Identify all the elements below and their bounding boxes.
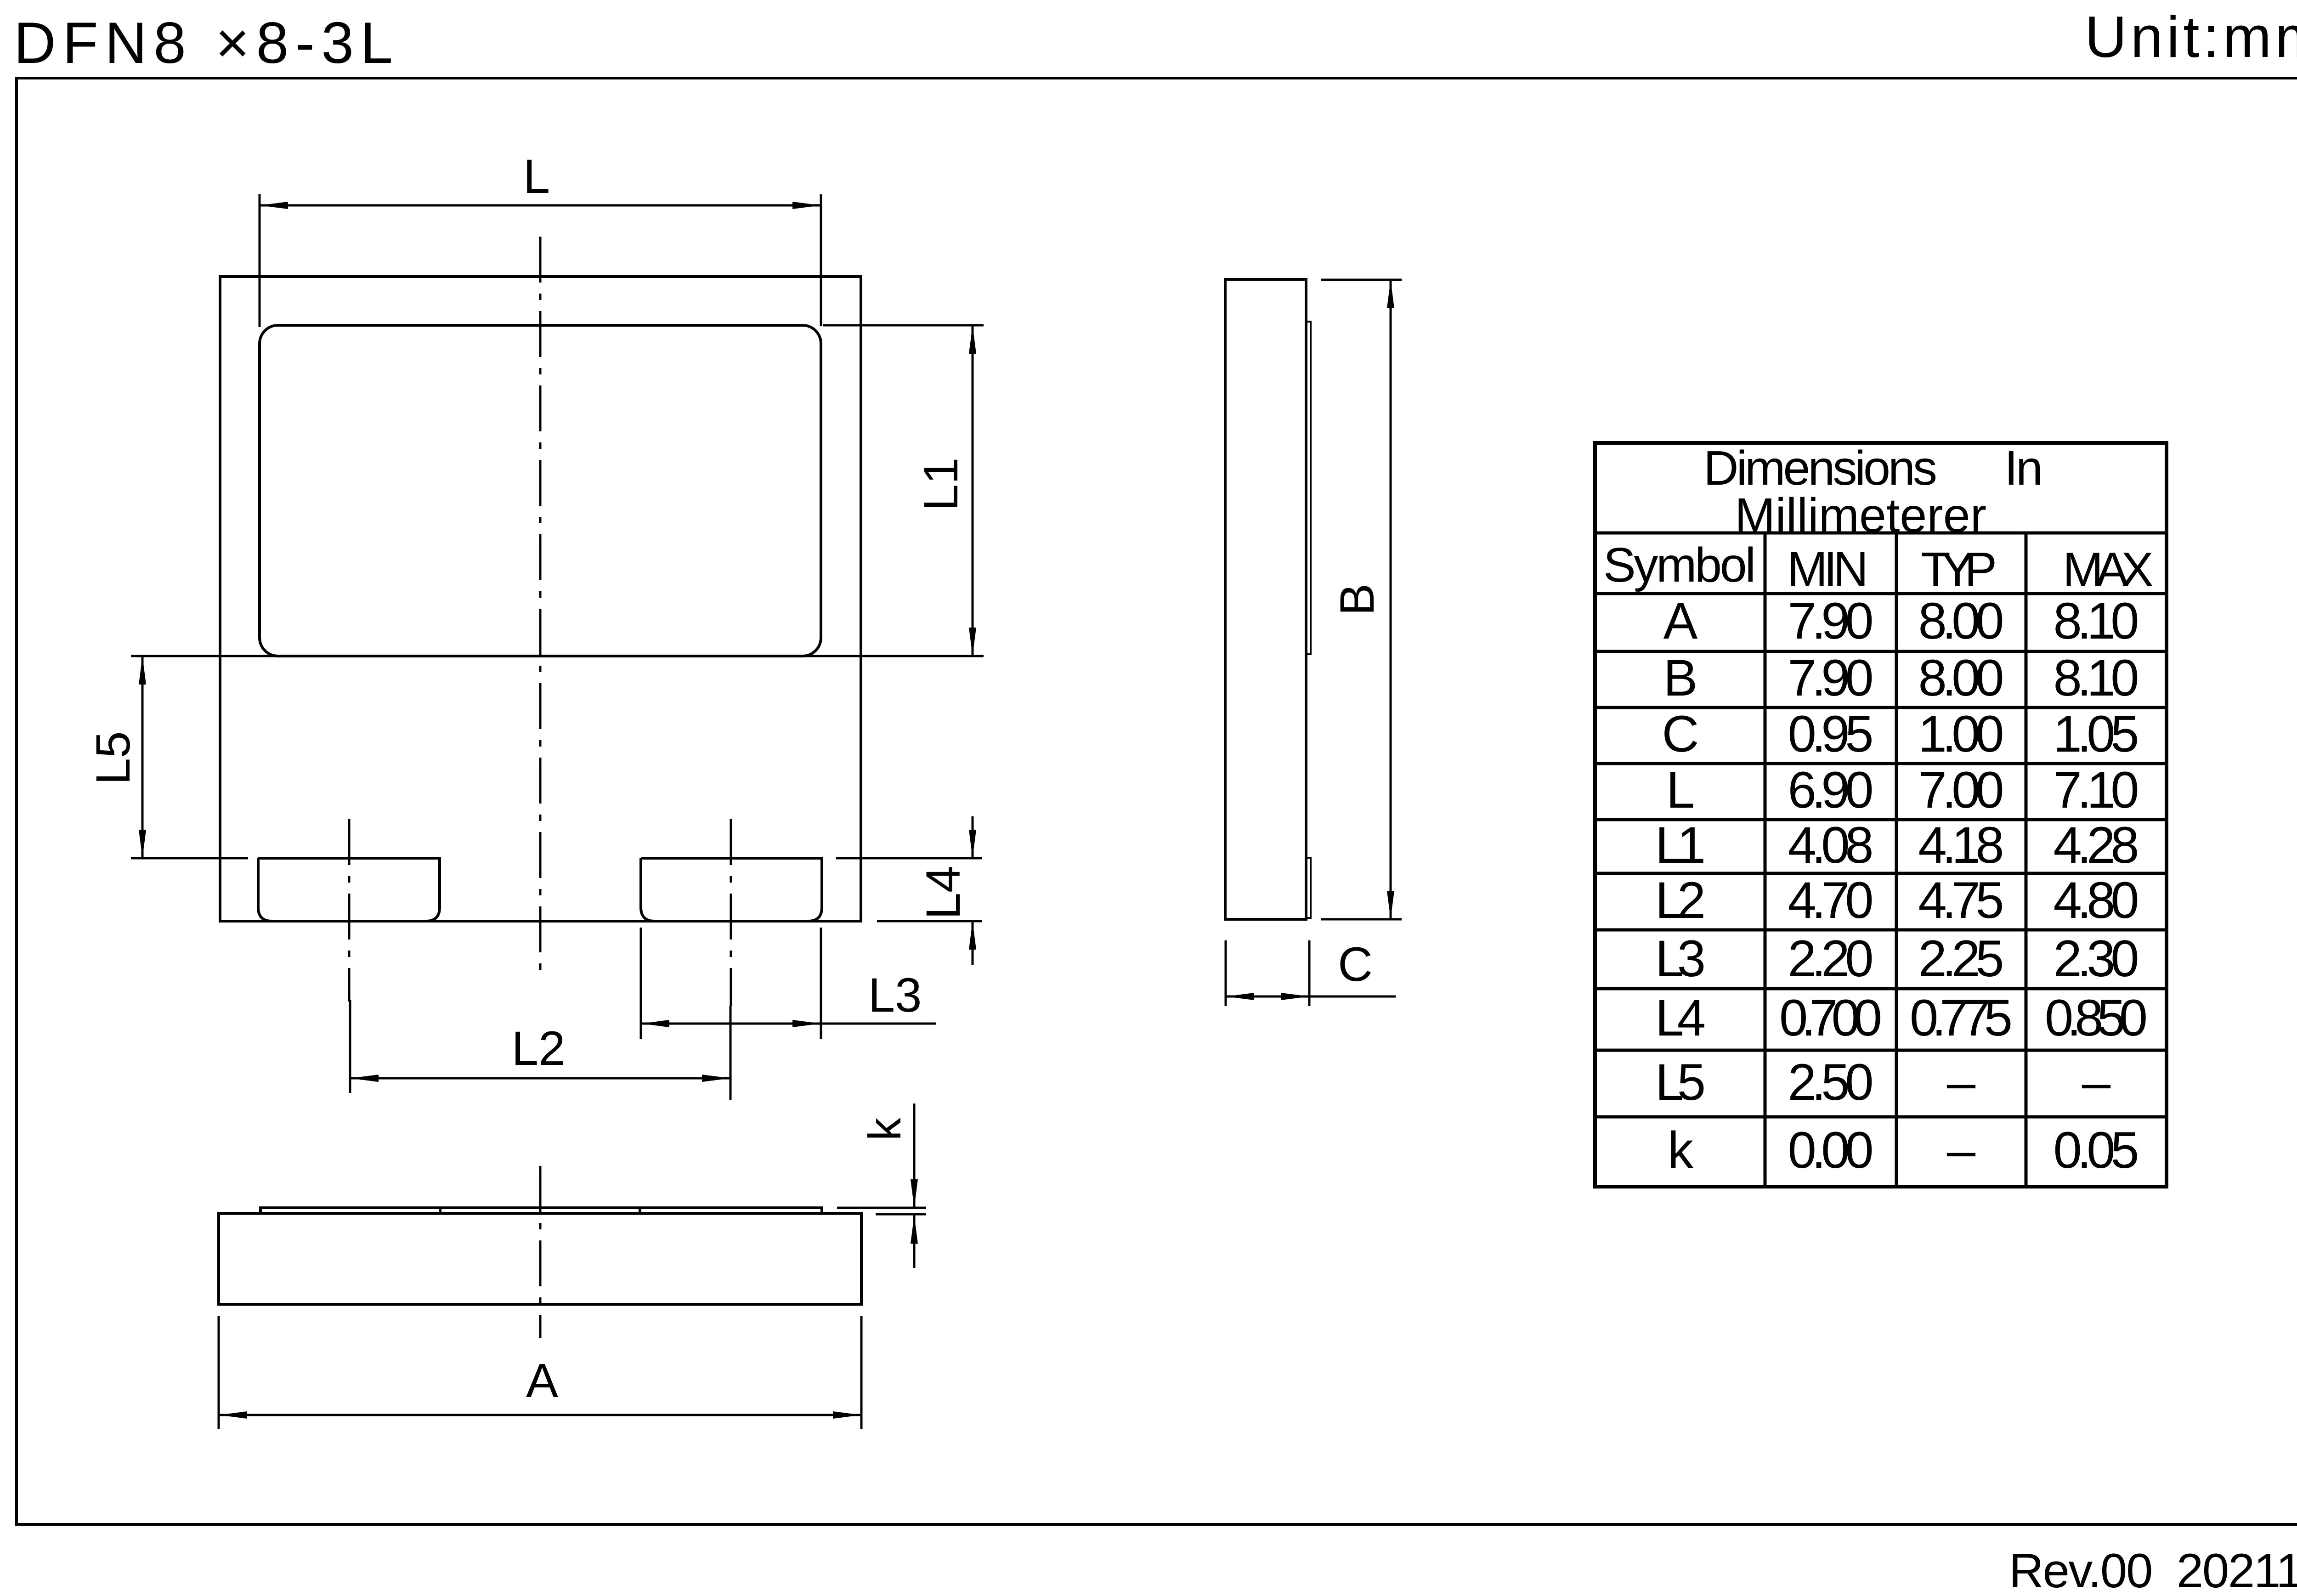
svg-text:2.25: 2.25 bbox=[1918, 930, 2004, 987]
svg-text:L2: L2 bbox=[1655, 872, 1706, 929]
svg-text:MAX: MAX bbox=[2063, 543, 2154, 597]
svg-text:DFN8 ×8-3L: DFN8 ×8-3L bbox=[14, 10, 393, 75]
svg-text:8.10: 8.10 bbox=[2054, 649, 2139, 707]
svg-text:L4: L4 bbox=[1655, 989, 1706, 1047]
svg-text:2.20: 2.20 bbox=[1788, 930, 1874, 987]
svg-text:7.10: 7.10 bbox=[2054, 761, 2139, 819]
svg-text:–: – bbox=[1947, 1053, 1976, 1111]
svg-text:7.00: 7.00 bbox=[1918, 761, 2004, 819]
svg-text:7.90: 7.90 bbox=[1788, 649, 1874, 707]
svg-text:Millimeterer: Millimeterer bbox=[1735, 488, 1986, 543]
svg-text:C: C bbox=[1662, 705, 1699, 763]
svg-text:1.05: 1.05 bbox=[2054, 705, 2139, 763]
svg-text:0.775: 0.775 bbox=[1910, 989, 2013, 1047]
svg-text:L: L bbox=[523, 150, 550, 204]
svg-text:–: – bbox=[2082, 1053, 2111, 1111]
svg-text:L1: L1 bbox=[1655, 816, 1706, 874]
svg-text:4.28: 4.28 bbox=[2054, 816, 2139, 874]
svg-text:8.00: 8.00 bbox=[1918, 592, 2004, 650]
svg-text:4.08: 4.08 bbox=[1788, 816, 1874, 874]
svg-text:8.00: 8.00 bbox=[1918, 649, 2004, 707]
svg-text:8.10: 8.10 bbox=[2054, 592, 2139, 650]
svg-text:TYP: TYP bbox=[1921, 543, 1997, 597]
svg-text:1.00: 1.00 bbox=[1918, 705, 2004, 763]
svg-text:L2: L2 bbox=[512, 1022, 566, 1075]
svg-text:Symbol: Symbol bbox=[1603, 538, 1756, 592]
svg-text:6.90: 6.90 bbox=[1788, 761, 1874, 819]
svg-text:–: – bbox=[1947, 1121, 1976, 1179]
svg-text:In: In bbox=[2004, 441, 2043, 495]
svg-text:0.850: 0.850 bbox=[2045, 989, 2148, 1047]
svg-text:L: L bbox=[1666, 761, 1695, 819]
svg-text:B: B bbox=[1663, 649, 1698, 707]
svg-text:0.95: 0.95 bbox=[1788, 705, 1874, 763]
svg-text:L3: L3 bbox=[868, 968, 922, 1022]
svg-text:k: k bbox=[859, 1117, 911, 1141]
svg-text:L1: L1 bbox=[914, 458, 968, 511]
svg-text:Rev.00 202111: Rev.00 202111 bbox=[2009, 1544, 2297, 1596]
svg-text:k: k bbox=[1668, 1121, 1694, 1179]
svg-text:C: C bbox=[1338, 938, 1373, 991]
svg-text:L3: L3 bbox=[1655, 930, 1706, 987]
svg-text:MIN: MIN bbox=[1787, 542, 1868, 596]
svg-text:L5: L5 bbox=[1655, 1053, 1706, 1111]
svg-text:0.700: 0.700 bbox=[1779, 989, 1882, 1047]
svg-text:B: B bbox=[1330, 583, 1384, 616]
svg-text:L4: L4 bbox=[917, 866, 970, 920]
svg-text:0.00: 0.00 bbox=[1788, 1121, 1874, 1179]
svg-text:2.50: 2.50 bbox=[1788, 1053, 1874, 1111]
svg-text:L5: L5 bbox=[86, 731, 140, 785]
svg-text:A: A bbox=[526, 1354, 558, 1408]
svg-text:2.30: 2.30 bbox=[2054, 930, 2139, 987]
svg-text:4.75: 4.75 bbox=[1918, 872, 2004, 929]
svg-text:0.05: 0.05 bbox=[2054, 1121, 2139, 1179]
svg-text:4.70: 4.70 bbox=[1788, 872, 1874, 929]
svg-text:A: A bbox=[1663, 592, 1698, 650]
svg-text:Dimensions: Dimensions bbox=[1703, 441, 1937, 495]
svg-text:Unit:mm: Unit:mm bbox=[2085, 4, 2297, 69]
svg-text:4.80: 4.80 bbox=[2054, 872, 2139, 929]
svg-text:7.90: 7.90 bbox=[1788, 592, 1874, 650]
svg-text:4.18: 4.18 bbox=[1918, 816, 2004, 874]
